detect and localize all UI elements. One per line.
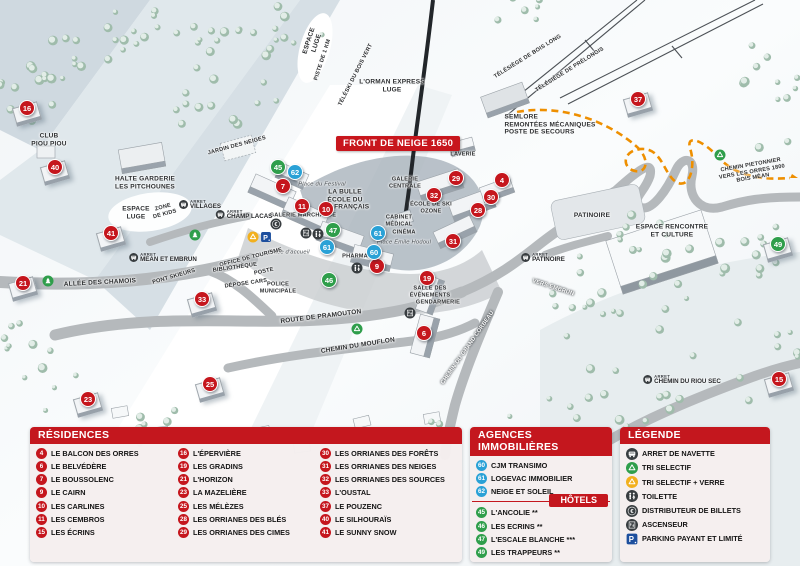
residences-list: 4LE BALCON DES ORRES6LE BELVÉDÈRE7LE BOU… <box>30 444 462 542</box>
legend-residence-23: 23LA MAZELIÈRE <box>176 486 318 499</box>
legend-residence-40: 40LE SILHOURAÏS <box>318 513 460 526</box>
legend-residence-33: 33L'OUSTAL <box>318 486 460 499</box>
residences-column: 16L'ÉPERVIÈRE19LES GRADINS21L'HORIZON23L… <box>176 447 318 539</box>
marker-badge: 60 <box>476 460 487 471</box>
bus-stop: ARRETMEAN ET EMBRUN <box>129 249 197 267</box>
map-marker-41[interactable]: 41 <box>103 225 119 241</box>
entry-name: LES ORRIANES DES CIMES <box>193 528 290 537</box>
map-label: PONT SKIEURS <box>152 268 196 287</box>
entry-name: L'HORIZON <box>193 475 233 484</box>
map-label: GALERIECENTRALE <box>389 176 421 189</box>
marker-badge: 61 <box>476 473 487 484</box>
entry-name: LE BOUSSOLENC <box>51 475 114 484</box>
entry-name: LES CEMBROS <box>51 515 105 524</box>
recycle-green-icon <box>626 462 638 474</box>
elevator-icon <box>626 519 638 531</box>
tree-icon <box>43 276 54 287</box>
map-label: SALLE DESÉVÈNEMENTS <box>410 285 451 298</box>
map-marker-11[interactable]: 11 <box>294 198 310 214</box>
marker-badge: 4 <box>36 448 47 459</box>
marker-badge: 45 <box>476 507 487 518</box>
marker-badge: 37 <box>320 501 331 512</box>
legend-key-row: ARRET DE NAVETTE <box>624 447 768 461</box>
marker-badge: 15 <box>36 527 47 538</box>
legend-residence-21: 21L'HORIZON <box>176 473 318 486</box>
map-marker-21[interactable]: 21 <box>15 275 31 291</box>
residences-title: RÉSIDENCES <box>30 427 462 444</box>
legend-key-label: ASCENSEUR <box>642 520 688 529</box>
bus-stop-name: MEAN ET EMBRUN <box>140 257 197 264</box>
entry-name: L'ÉPERVIÈRE <box>193 449 241 458</box>
entry-name: L'OUSTAL <box>335 488 371 497</box>
marker-badge: 62 <box>476 486 487 497</box>
entry-name: LES TRAPPEURS ** <box>491 548 560 557</box>
marker-badge: 46 <box>476 521 487 532</box>
map-label: TÉLÉSIÈGE DE PRÉLONGIS <box>534 46 605 94</box>
marker-badge: 32 <box>320 474 331 485</box>
front-de-neige-banner: FRONT DE NEIGE 1650 <box>336 136 460 151</box>
map-marker-28[interactable]: 28 <box>470 202 486 218</box>
map-marker-23[interactable]: 23 <box>80 391 96 407</box>
toilet-icon <box>626 490 638 502</box>
marker-badge: 30 <box>320 448 331 459</box>
entry-name: LOGEVAC IMMOBILIER <box>491 474 572 483</box>
legend-residence-9: 9LE CAIRN <box>34 486 176 499</box>
legend-residence-19: 19LES GRADINS <box>176 460 318 473</box>
svg-text:P: P <box>629 535 634 544</box>
map-label: CLUBPIOU PIOU <box>31 132 66 147</box>
hotels-title: HÔTELS <box>549 494 608 507</box>
recycle-green-icon <box>352 324 363 335</box>
map-label: SEMLOREREMONTÉES MÉCANIQUESPOSTE DE SECO… <box>504 114 595 137</box>
legend-key-row: €DISTRIBUTEUR DE BILLETS <box>624 503 768 517</box>
toilet-icon <box>352 263 363 274</box>
map-marker-47[interactable]: 47 <box>325 222 341 238</box>
toilet-icon <box>313 229 324 240</box>
marker-badge: 19 <box>178 461 189 472</box>
legende-title: LÉGENDE <box>620 427 770 444</box>
entry-name: LES CARLINES <box>51 502 105 511</box>
entry-name: LE CAIRN <box>51 488 85 497</box>
elevator-icon <box>405 308 416 319</box>
map-marker-46[interactable]: 46 <box>321 272 337 288</box>
map-label: HALTE GARDERIELES PITCHOUNES <box>115 175 175 190</box>
legend-residence-4: 4LE BALCON DES ORRES <box>34 447 176 460</box>
legend-hotel-47: 47L'ESCALE BLANCHE *** <box>474 533 610 546</box>
map-label: L'ORMAN EXPRESSLUGE <box>359 78 425 93</box>
bus-icon <box>643 371 652 389</box>
map-label: CHEMIN PIETONNIERVERS LES ORRES 1800BOIS… <box>717 156 786 187</box>
marker-badge: 49 <box>476 547 487 558</box>
map-marker-7[interactable]: 7 <box>275 178 291 194</box>
legend-agency-60: 60CJM TRANSIMO <box>474 459 610 472</box>
resort-map: 1640412133232571110932294302831196371545… <box>0 0 800 566</box>
legend-residence-37: 37LE POUZENC <box>318 499 460 512</box>
map-label: GENDARMERIE <box>416 300 460 307</box>
legend-residence-28: 28LES ORRIANES DES BLÉS <box>176 513 318 526</box>
residences-column: 4LE BALCON DES ORRES6LE BELVÉDÈRE7LE BOU… <box>34 447 176 539</box>
legend-key-row: ASCENSEUR <box>624 518 768 532</box>
map-marker-37[interactable]: 37 <box>630 91 646 107</box>
legend-residence-25: 25LES MÉLÈZES <box>176 499 318 512</box>
bus-stop-name: CHAMP LACAS <box>227 214 273 221</box>
recycle-green-icon <box>715 150 726 161</box>
residences-column: 30LES ORRIANES DES FORÊTS31LES ORRIANES … <box>318 447 460 539</box>
map-label: PATINOIRE <box>574 212 610 220</box>
legend-residence-31: 31LES ORRIANES DES NEIGES <box>318 460 460 473</box>
entry-name: CJM TRANSIMO <box>491 461 547 470</box>
bus-stop-name: CHEMIN DU RIOU SEC <box>654 379 721 386</box>
bus-icon <box>626 448 638 460</box>
legend-key-label: ARRET DE NAVETTE <box>642 449 715 458</box>
bus-stop: ARRETPATINOIRE <box>521 249 565 267</box>
map-label: ALLÉE DES CHAMOIS <box>64 277 137 288</box>
entry-name: L'ESCALE BLANCHE *** <box>491 535 575 544</box>
map-marker-19[interactable]: 19 <box>419 270 435 286</box>
map-label: ROUTE DE PRAMOUTON <box>280 308 362 326</box>
map-label: CHEMIN DU MOUFLON <box>320 336 395 355</box>
entry-name: LE BALCON DES ORRES <box>51 449 139 458</box>
marker-badge: 31 <box>320 461 331 472</box>
parking-icon: P <box>261 232 272 243</box>
entry-name: LES ÉCRINS <box>51 528 95 537</box>
entry-name: LES GRADINS <box>193 462 243 471</box>
marker-badge: 25 <box>178 501 189 512</box>
legend-residence-7: 7LE BOUSSOLENC <box>34 473 176 486</box>
marker-badge: 16 <box>178 448 189 459</box>
legend-residence-11: 11LES CEMBROS <box>34 513 176 526</box>
map-label: ESPACE RENCONTREET CULTURE <box>636 223 708 238</box>
panel-legende: LÉGENDE ARRET DE NAVETTETRI SELECTIFTRI … <box>620 427 770 562</box>
bus-stop: ARRETCHEMIN DU RIOU SEC <box>643 371 721 389</box>
legend-residence-16: 16L'ÉPERVIÈRE <box>176 447 318 460</box>
bus-stop: ARRETVILLAGES <box>179 196 221 214</box>
marker-badge: 6 <box>36 461 47 472</box>
legend-panels: RÉSIDENCES 4LE BALCON DES ORRES6LE BELVÉ… <box>30 427 770 562</box>
map-marker-6[interactable]: 6 <box>416 325 432 341</box>
legend-residence-10: 10LES CARLINES <box>34 499 176 512</box>
legend-residence-41: 41LE SUNNY SNOW <box>318 526 460 539</box>
marker-badge: 21 <box>178 474 189 485</box>
svg-text:€: € <box>275 222 278 228</box>
map-label: Place du Festival <box>298 182 346 189</box>
recycle-yellow-icon <box>626 476 638 488</box>
marker-badge: 47 <box>476 534 487 545</box>
agences-title: AGENCES IMMOBILIÈRES <box>470 427 612 456</box>
legend-key-label: DISTRIBUTEUR DE BILLETS <box>642 506 741 515</box>
legend-key-label: TOILETTE <box>642 492 677 501</box>
map-label: POLICEMUNICIPALE <box>260 281 296 294</box>
atm-icon: € <box>626 505 638 517</box>
marker-badge: 9 <box>36 487 47 498</box>
legend-residence-32: 32LES ORRIANES DES SOURCES <box>318 473 460 486</box>
legend-key-label: TRI SELECTIF <box>642 463 691 472</box>
entry-name: LES ORRIANES DES FORÊTS <box>335 449 438 458</box>
map-marker-9[interactable]: 9 <box>369 258 385 274</box>
map-label: TÉLÉSIÈGE DE BOIS LONG <box>493 34 563 81</box>
hotels-list: 45L'ANCOLIE **46LES ECRINS **47L'ESCALE … <box>470 506 612 562</box>
map-marker-60[interactable]: 60 <box>366 244 382 260</box>
bus-stop: ARRETCHAMP LACAS <box>216 206 273 224</box>
legend-agency-61: 61LOGEVAC IMMOBILIER <box>474 472 610 485</box>
entry-name: LES ORRIANES DES BLÉS <box>193 515 286 524</box>
map-label: TÉLÉSKI DU BOIS VERT <box>337 43 374 107</box>
entry-name: LE POUZENC <box>335 502 382 511</box>
map-marker-15[interactable]: 15 <box>771 371 787 387</box>
elevator-icon <box>301 228 312 239</box>
bus-icon <box>179 196 188 214</box>
legend-hotel-45: 45L'ANCOLIE ** <box>474 506 610 519</box>
map-label: CHEMIN DU GRAND CORBEAU <box>440 310 496 386</box>
map-marker-10[interactable]: 10 <box>318 201 334 217</box>
map-marker-4[interactable]: 4 <box>494 172 510 188</box>
hotels-divider: HÔTELS <box>472 501 610 502</box>
map-marker-33[interactable]: 33 <box>194 291 210 307</box>
legend-residence-29: 29LES ORRIANES DES CIMES <box>176 526 318 539</box>
agences-list: 60CJM TRANSIMO61LOGEVAC IMMOBILIER62NEIG… <box>470 456 612 499</box>
map-label: LAVERIE <box>450 152 475 159</box>
map-label: ESPACELUGE <box>122 205 149 220</box>
map-marker-61[interactable]: 61 <box>319 239 335 255</box>
entry-name: LE SUNNY SNOW <box>335 528 397 537</box>
entry-name: LA MAZELIÈRE <box>193 488 247 497</box>
map-label: Place Émile Hodoul <box>377 240 431 247</box>
map-marker-30[interactable]: 30 <box>483 189 499 205</box>
map-marker-40[interactable]: 40 <box>47 159 63 175</box>
panel-residences: RÉSIDENCES 4LE BALCON DES ORRES6LE BELVÉ… <box>30 427 462 562</box>
marker-badge: 28 <box>178 514 189 525</box>
map-label: ÉCOLE DE SKIOZONE <box>410 201 452 214</box>
entry-name: NEIGE ET SOLEIL <box>491 487 553 496</box>
bus-icon <box>216 206 225 224</box>
legende-list: ARRET DE NAVETTETRI SELECTIFTRI SELECTIF… <box>620 444 770 549</box>
legend-key-label: TRI SELECTIF + VERRE <box>642 478 725 487</box>
map-label: CINÉMA <box>392 230 415 237</box>
marker-badge: 29 <box>178 527 189 538</box>
tree-icon <box>190 230 201 241</box>
map-marker-25[interactable]: 25 <box>202 376 218 392</box>
map-marker-16[interactable]: 16 <box>19 100 35 116</box>
entry-name: L'ANCOLIE ** <box>491 508 538 517</box>
marker-badge: 41 <box>320 527 331 538</box>
marker-badge: 7 <box>36 474 47 485</box>
map-marker-29[interactable]: 29 <box>448 170 464 186</box>
legend-key-row: TOILETTE <box>624 489 768 503</box>
bus-icon <box>521 249 530 267</box>
parking-icon: P <box>626 533 638 545</box>
legend-residence-15: 15LES ÉCRINS <box>34 526 176 539</box>
legend-hotel-46: 46LES ECRINS ** <box>474 519 610 532</box>
map-label: CABINETMÉDICAL <box>386 214 413 227</box>
entry-name: LES ECRINS ** <box>491 522 543 531</box>
entry-name: LE SILHOURAÏS <box>335 515 391 524</box>
marker-badge: 40 <box>320 514 331 525</box>
marker-badge: 11 <box>36 514 47 525</box>
entry-name: LES ORRIANES DES NEIGES <box>335 462 436 471</box>
recycle-yellow-icon <box>248 232 259 243</box>
legend-residence-30: 30LES ORRIANES DES FORÊTS <box>318 447 460 460</box>
map-marker-62[interactable]: 62 <box>287 164 303 180</box>
map-label: JARDIN DES NEIGES <box>207 135 267 157</box>
entry-name: LES ORRIANES DES SOURCES <box>335 475 445 484</box>
map-marker-49[interactable]: 49 <box>770 236 786 252</box>
map-label: VERS EMBRUN <box>531 278 574 298</box>
legend-residence-6: 6LE BELVÉDÈRE <box>34 460 176 473</box>
entry-name: LE BELVÉDÈRE <box>51 462 106 471</box>
legend-key-row: PPARKING PAYANT ET LIMITÉ <box>624 532 768 546</box>
panel-agences-hotels: AGENCES IMMOBILIÈRES 60CJM TRANSIMO61LOG… <box>470 427 612 562</box>
bus-stop-name: PATINOIRE <box>532 257 565 264</box>
legend-hotel-49: 49LES TRAPPEURS ** <box>474 546 610 559</box>
map-label: ZONEDE KIDS <box>151 202 178 221</box>
map-marker-45[interactable]: 45 <box>270 159 286 175</box>
marker-badge: 23 <box>178 487 189 498</box>
legend-key-row: TRI SELECTIF <box>624 461 768 475</box>
svg-text:P: P <box>263 234 268 242</box>
legend-key-row: TRI SELECTIF + VERRE <box>624 475 768 489</box>
map-marker-31[interactable]: 31 <box>445 233 461 249</box>
legend-key-label: PARKING PAYANT ET LIMITÉ <box>642 534 743 543</box>
map-marker-32[interactable]: 32 <box>426 187 442 203</box>
map-marker-61[interactable]: 61 <box>370 225 386 241</box>
bus-icon <box>129 249 138 267</box>
entry-name: LES MÉLÈZES <box>193 502 244 511</box>
marker-badge: 33 <box>320 487 331 498</box>
marker-badge: 10 <box>36 501 47 512</box>
